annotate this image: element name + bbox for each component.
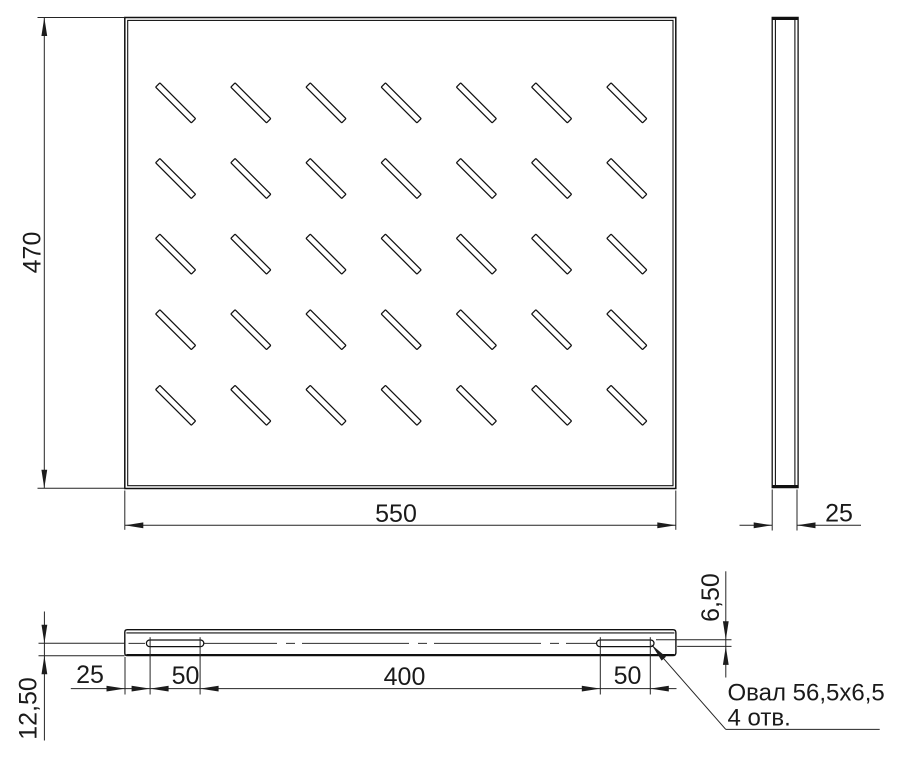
svg-text:6,50: 6,50 (697, 573, 725, 622)
svg-text:50: 50 (614, 662, 642, 690)
svg-text:550: 550 (375, 500, 417, 528)
svg-text:50: 50 (172, 662, 200, 690)
svg-text:400: 400 (384, 663, 426, 691)
svg-text:470: 470 (19, 232, 47, 274)
svg-text:4 отв.: 4 отв. (728, 705, 791, 732)
svg-text:25: 25 (76, 661, 104, 689)
svg-text:25: 25 (825, 500, 853, 528)
svg-text:Овал 56,5х6,5: Овал 56,5х6,5 (728, 680, 885, 707)
svg-text:12,50: 12,50 (15, 677, 43, 740)
